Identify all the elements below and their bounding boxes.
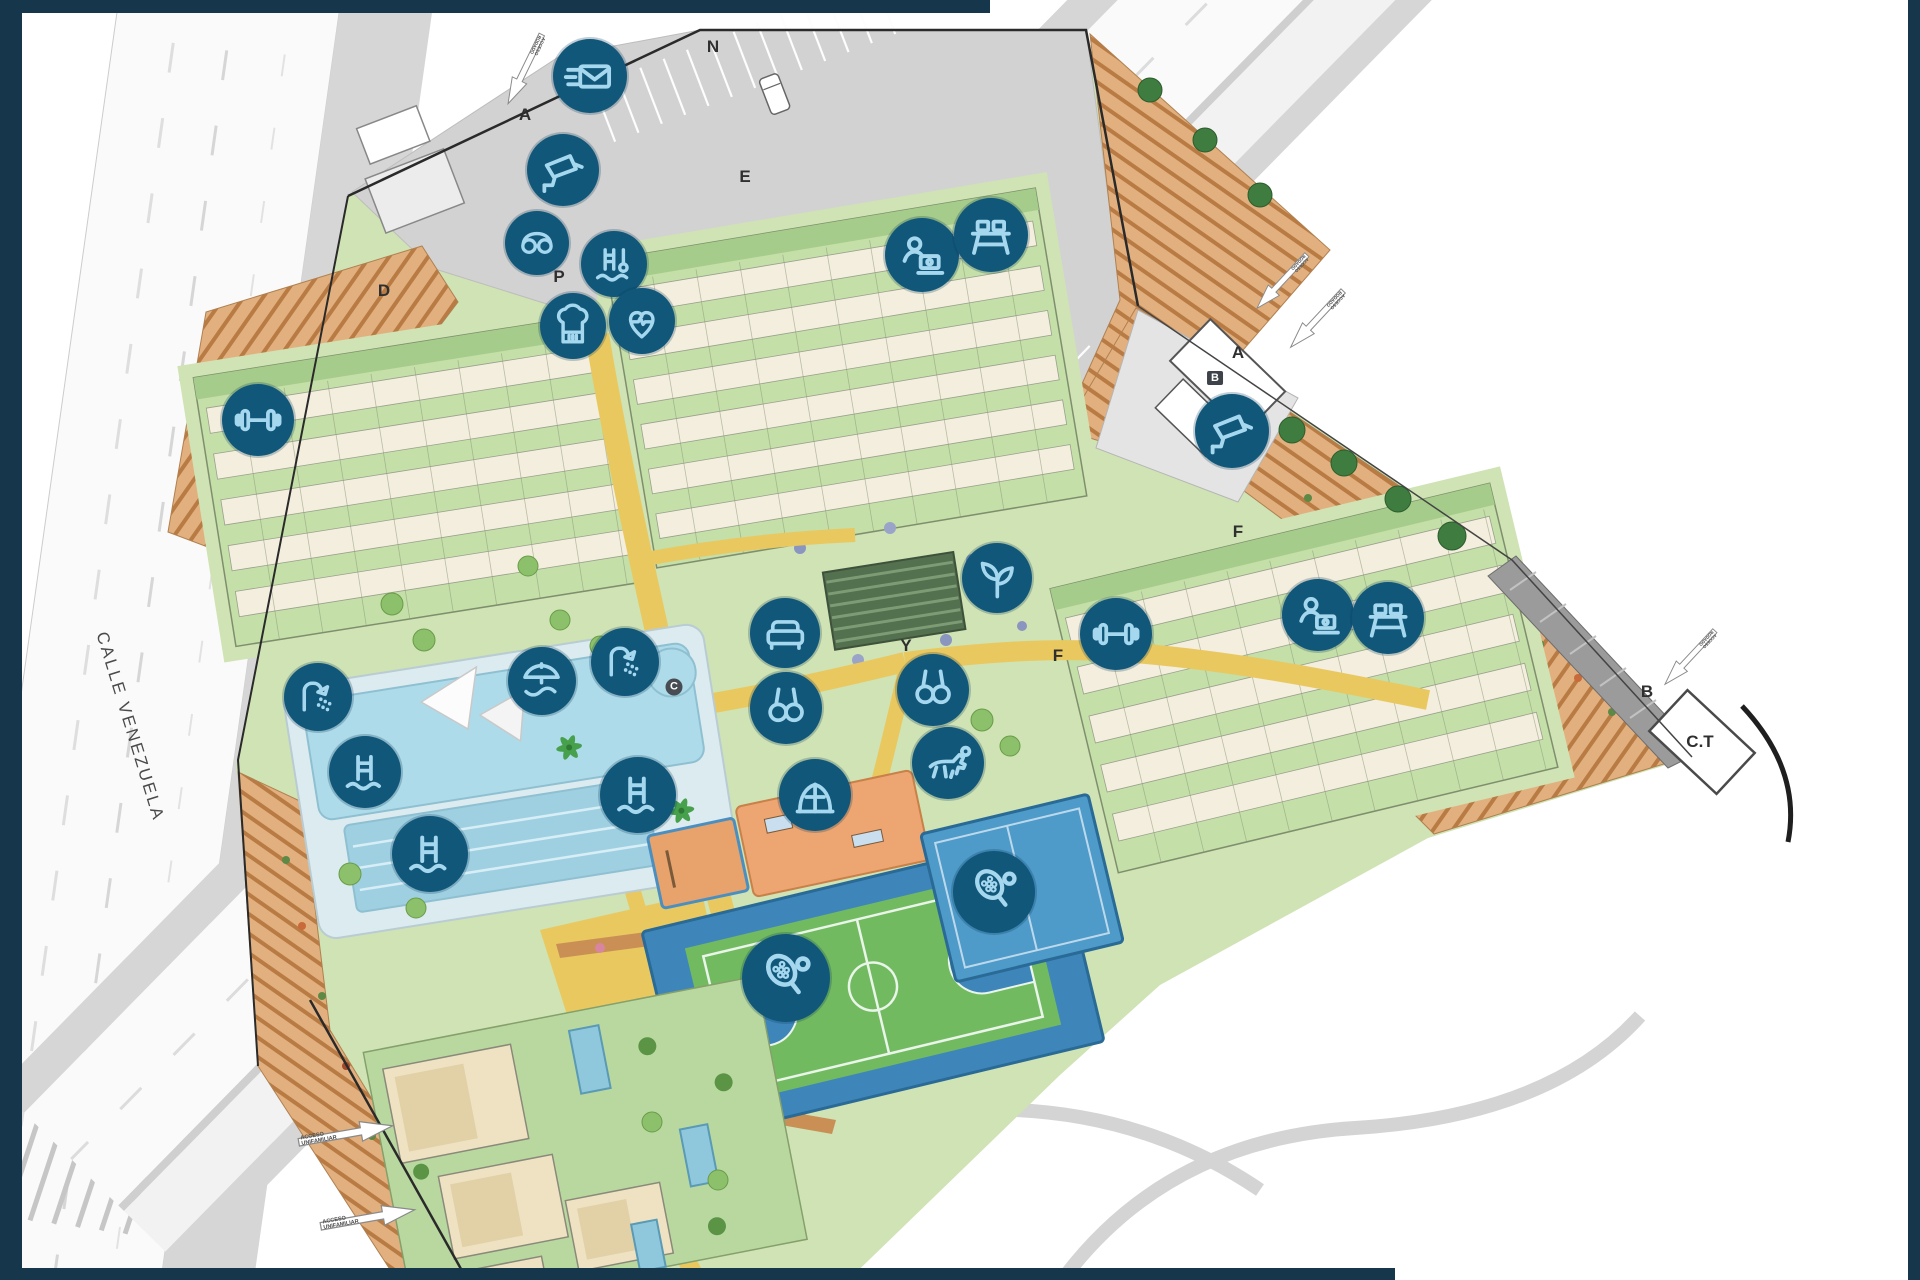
padel-glyph — [752, 944, 821, 1013]
rings-glyph — [758, 680, 814, 736]
gym-glyph — [230, 392, 286, 448]
site-plan-drawing: CALLE VENEZUELA — [0, 0, 1920, 1280]
shower-glyph — [598, 635, 651, 688]
plan-letter-b: B — [1207, 371, 1223, 385]
gym-west-icon[interactable] — [222, 384, 294, 456]
gym-rings-west-icon[interactable] — [750, 672, 822, 744]
wellness-glyph — [616, 295, 667, 346]
pool-west-2-icon[interactable] — [392, 816, 468, 892]
padel-court-icon[interactable] — [953, 851, 1035, 933]
mailroom-icon[interactable] — [553, 39, 627, 113]
site-plan: CALLE VENEZUELA — [0, 0, 1920, 1280]
shower-central-icon[interactable] — [591, 628, 659, 696]
page-frame-bottom — [0, 1268, 1395, 1280]
plan-letter-e: E — [739, 167, 750, 187]
cctv-glyph — [535, 142, 591, 198]
heatedpool-glyph — [588, 238, 639, 289]
multisport-court-icon[interactable] — [742, 934, 830, 1022]
gourmet-room-icon[interactable] — [540, 293, 606, 359]
plan-letter-n: N — [707, 37, 719, 57]
urban-garden-icon[interactable] — [962, 543, 1032, 613]
rings-glyph — [905, 662, 961, 718]
swim-goggles-icon[interactable] — [505, 211, 569, 275]
plan-letter-y: Y — [900, 636, 911, 656]
plan-letter-a: A — [1232, 343, 1244, 363]
concierge-glyph — [893, 226, 951, 284]
barbecue-north-icon[interactable] — [954, 198, 1028, 272]
bbq-glyph — [1360, 590, 1416, 646]
barbecue-east-icon[interactable] — [1352, 582, 1424, 654]
concierge-glyph — [1290, 587, 1346, 643]
pool-glyph — [608, 765, 667, 824]
page-frame-right — [1908, 0, 1920, 1280]
chef-glyph — [547, 300, 598, 351]
solarium-icon[interactable] — [508, 647, 576, 715]
gym-east-icon[interactable] — [1080, 598, 1152, 670]
goggles-glyph — [512, 218, 562, 268]
plant-glyph — [970, 551, 1025, 606]
pool-glyph — [400, 824, 459, 883]
cctv-north-icon[interactable] — [527, 134, 599, 206]
bbq-glyph — [962, 206, 1020, 264]
page-frame-top — [0, 0, 990, 13]
concierge-east-icon[interactable] — [1282, 579, 1354, 651]
shower-west-icon[interactable] — [284, 663, 352, 731]
cctv-east-icon[interactable] — [1195, 394, 1269, 468]
sofa-glyph — [758, 606, 813, 661]
pet-glyph — [920, 735, 976, 791]
plan-letter-a: A — [519, 105, 531, 125]
plan-letter-d: D — [378, 281, 390, 301]
pet-area-icon[interactable] — [912, 727, 984, 799]
slide-glyph — [787, 767, 843, 823]
plan-letter-c: C — [666, 679, 683, 696]
cctv-glyph — [1203, 402, 1261, 460]
playground-icon[interactable] — [779, 759, 851, 831]
pool-glyph — [337, 744, 393, 800]
plan-letter-p: P — [553, 267, 564, 287]
heated-pool-icon[interactable] — [581, 231, 647, 297]
plan-letter-f: F — [1233, 522, 1243, 542]
gym-glyph — [1088, 606, 1144, 662]
wellness-icon[interactable] — [609, 288, 675, 354]
mail-glyph — [561, 47, 619, 105]
pool-west-1-icon[interactable] — [329, 736, 401, 808]
padel-glyph — [962, 860, 1026, 924]
pool-central-icon[interactable] — [600, 757, 676, 833]
gym-rings-east-icon[interactable] — [897, 654, 969, 726]
page-frame-left — [0, 0, 22, 1280]
solarium-glyph — [515, 654, 568, 707]
plan-letter-ct: C.T — [1686, 732, 1713, 752]
plan-letter-b: B — [1641, 682, 1653, 702]
plan-letter-f: F — [1053, 646, 1063, 666]
shower-glyph — [291, 670, 344, 723]
chill-out-icon[interactable] — [750, 598, 820, 668]
concierge-north-icon[interactable] — [885, 218, 959, 292]
